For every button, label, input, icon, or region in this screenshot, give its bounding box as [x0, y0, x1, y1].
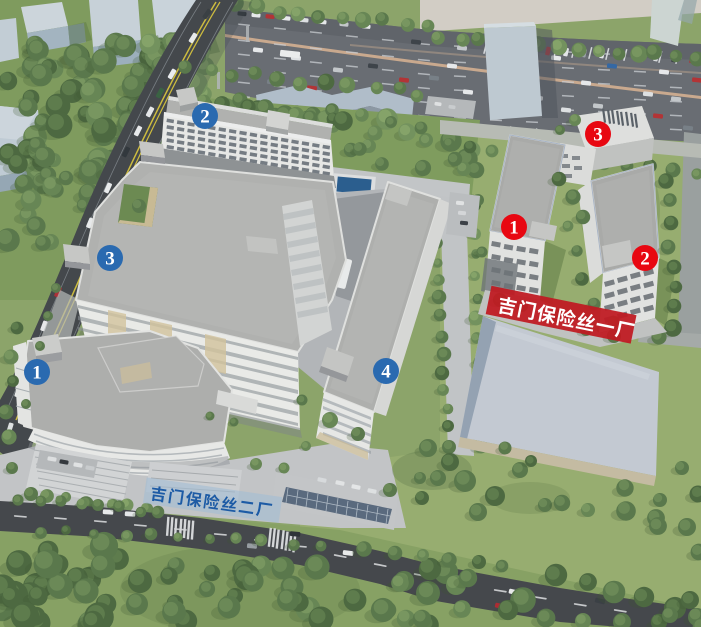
svg-text:3: 3: [593, 125, 603, 146]
svg-text:2: 2: [640, 249, 650, 270]
svg-text:2: 2: [200, 107, 210, 128]
svg-text:1: 1: [32, 363, 42, 384]
svg-text:3: 3: [105, 249, 115, 270]
svg-text:1: 1: [509, 218, 519, 239]
svg-text:4: 4: [381, 362, 391, 383]
